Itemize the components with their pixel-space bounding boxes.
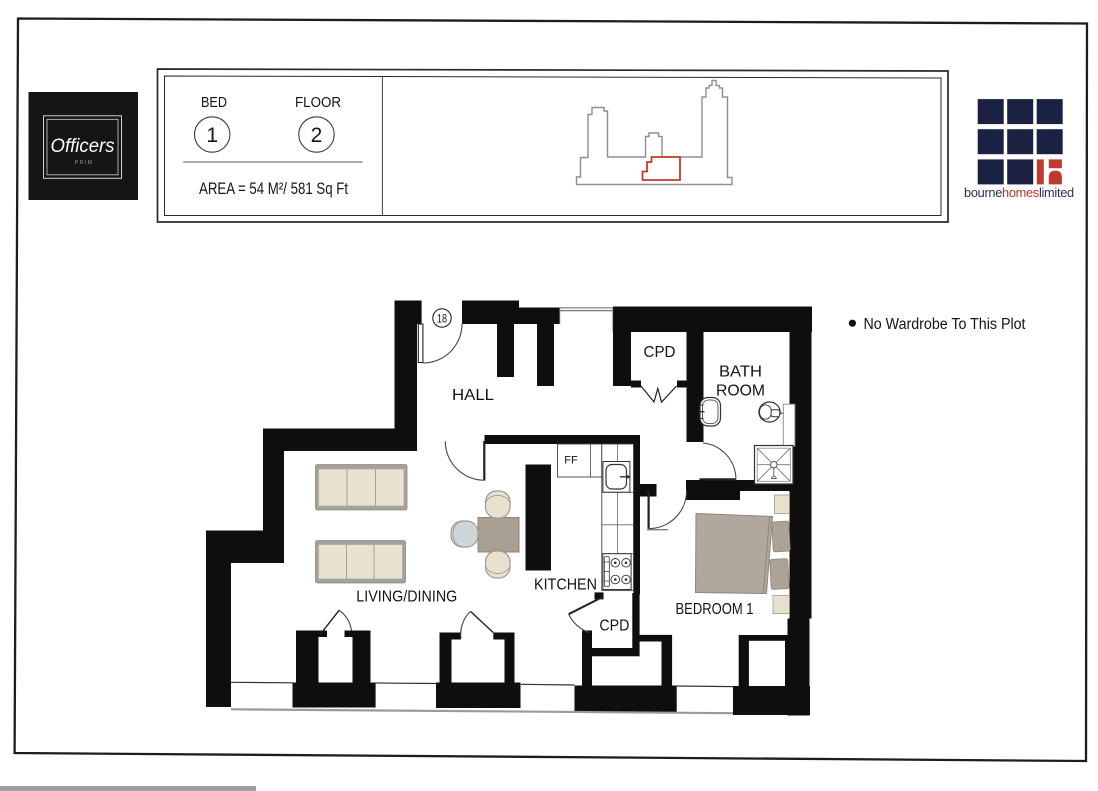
svg-text:PRIM: PRIM [75, 160, 94, 166]
svg-text:No Wardrobe To This Plot: No Wardrobe To This Plot [864, 316, 1027, 333]
svg-text:AREA = 54 M²/ 581 Sq Ft: AREA = 54 M²/ 581 Sq Ft [199, 180, 348, 198]
svg-text:FLOOR: FLOOR [295, 94, 341, 111]
svg-text:BEDROOM 1: BEDROOM 1 [676, 601, 754, 618]
svg-text:LIVING/DINING: LIVING/DINING [356, 589, 457, 606]
svg-text:18: 18 [437, 311, 447, 325]
svg-text:FF: FF [564, 455, 578, 467]
svg-text:CPD: CPD [599, 618, 629, 635]
svg-text:HALL: HALL [452, 387, 494, 404]
svg-text:1: 1 [206, 124, 218, 147]
svg-text:CPD: CPD [644, 344, 676, 361]
svg-text:ROOM: ROOM [716, 383, 765, 400]
svg-text:BED: BED [201, 94, 227, 111]
svg-text:KITCHEN: KITCHEN [534, 577, 597, 594]
svg-text:bournehomeslimited: bournehomeslimited [964, 185, 1074, 200]
svg-text:2: 2 [311, 124, 323, 147]
svg-text:Officers: Officers [51, 136, 115, 157]
svg-text:BATH: BATH [719, 364, 762, 381]
